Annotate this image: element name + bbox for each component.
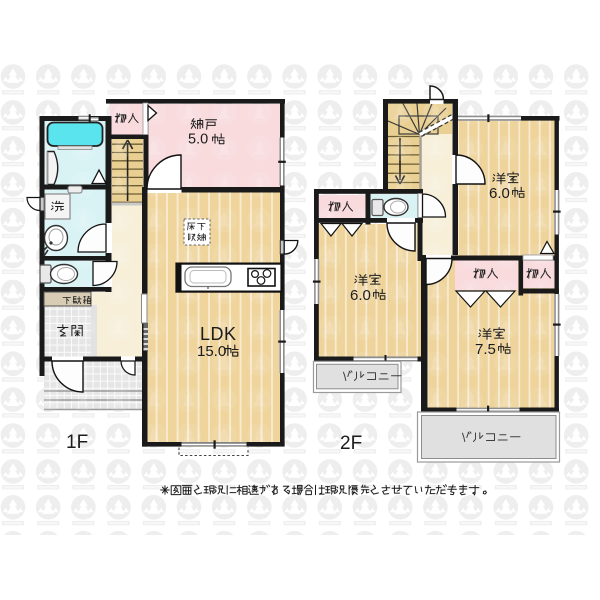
svg-text:6.0: 6.0 xyxy=(350,287,371,304)
svg-text:1F: 1F xyxy=(66,432,88,453)
svg-text:6.0: 6.0 xyxy=(489,185,510,202)
svg-text:15.0: 15.0 xyxy=(197,343,226,360)
svg-text:2F: 2F xyxy=(340,433,362,454)
svg-text:7.5: 7.5 xyxy=(475,341,496,358)
svg-text:5.0: 5.0 xyxy=(188,132,208,148)
svg-text:LDK: LDK xyxy=(200,324,237,344)
